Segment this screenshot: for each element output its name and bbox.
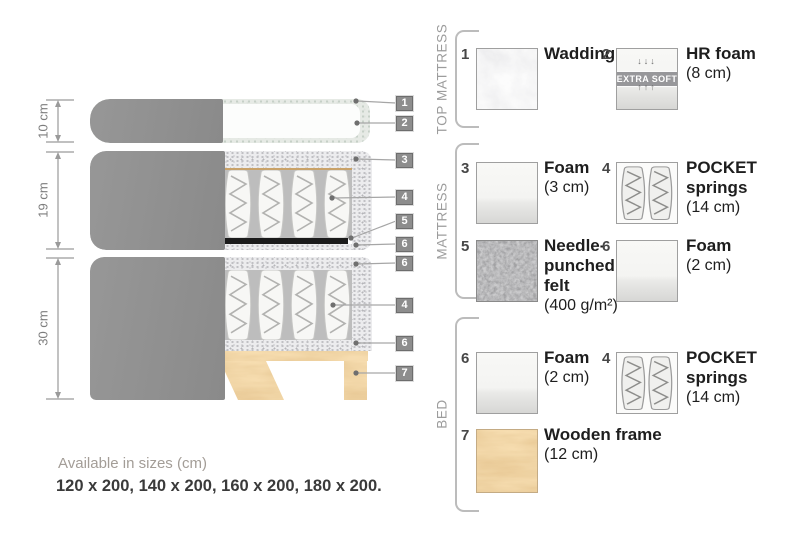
legend-item-title: POCKET springs [686, 348, 800, 388]
legend-item-text: POCKET springs (14 cm) [686, 348, 800, 408]
callout-badge-6c: 6 [396, 336, 413, 351]
swatch-wadding [476, 48, 538, 110]
legend-item-number: 4 [602, 160, 610, 177]
callout-badge-7: 7 [396, 366, 413, 381]
swatch-foam-3cm [476, 162, 538, 224]
legend-item-text: POCKET springs (14 cm) [686, 158, 800, 218]
dimension-label-bed: 30 cm [36, 310, 51, 345]
legend-item-number: 1 [461, 46, 469, 63]
legend-item-text: Wooden frame (12 cm) [544, 425, 724, 465]
swatch-foam-2cm [616, 240, 678, 302]
legend-item-size: (8 cm) [686, 64, 800, 84]
legend-item-title: Foam [686, 236, 800, 256]
callout-badge-2: 2 [396, 116, 413, 131]
callout-badge-3: 3 [396, 153, 413, 168]
swatch-needle-punched-felt [476, 240, 538, 302]
legend-item-size: (12 cm) [544, 445, 724, 465]
callout-badge-4: 4 [396, 190, 413, 205]
callout-badge-1: 1 [396, 96, 413, 111]
callout-badge-4b: 4 [396, 298, 413, 313]
swatch-hr-foam: ↓↓↓ EXTRA SOFT ↑↑↑ [616, 48, 678, 110]
section-label-mattress: MATTRESS [435, 182, 450, 259]
diagram-line-art [0, 0, 430, 533]
arrows-up-icon: ↑↑↑ [617, 82, 677, 92]
swatch-pocket-springs [616, 352, 678, 414]
dimension-label-mattress: 19 cm [36, 182, 51, 217]
available-sizes-caption: Available in sizes (cm) [58, 455, 207, 472]
legend-item-text: Foam (2 cm) [686, 236, 800, 276]
legend-item-title: HR foam [686, 44, 800, 64]
legend-item-number: 6 [602, 238, 610, 255]
legend-item-number: 2 [602, 46, 610, 63]
section-label-bed: BED [435, 399, 450, 429]
legend-item-size: (14 cm) [686, 388, 800, 408]
callout-badge-6: 6 [396, 237, 413, 252]
available-sizes-values: 120 x 200, 140 x 200, 160 x 200, 180 x 2… [56, 477, 382, 496]
callout-badge-5: 5 [396, 214, 413, 229]
legend-item-title: Wooden frame [544, 425, 724, 445]
swatch-wooden-frame [476, 429, 538, 493]
callout-badge-6b: 6 [396, 256, 413, 271]
legend-item-number: 3 [461, 160, 469, 177]
legend-item-number: 5 [461, 238, 469, 255]
section-label-top-mattress: TOP MATTRESS [435, 24, 450, 135]
legend-item-number: 6 [461, 350, 469, 367]
legend-item-size: (2 cm) [686, 256, 800, 276]
dimension-label-top-mattress: 10 cm [36, 103, 51, 138]
legend-item-number: 7 [461, 427, 469, 444]
legend-item-title: POCKET springs [686, 158, 800, 198]
swatch-foam-2cm [476, 352, 538, 414]
legend-item-number: 4 [602, 350, 610, 367]
legend-item-text: HR foam (8 cm) [686, 44, 800, 84]
arrows-down-icon: ↓↓↓ [617, 56, 677, 66]
mattress-construction-infographic: 10 cm 19 cm 30 cm 1 2 3 4 5 6 6 4 6 7 Av… [0, 0, 800, 533]
legend-item-size: (14 cm) [686, 198, 800, 218]
swatch-pocket-springs [616, 162, 678, 224]
